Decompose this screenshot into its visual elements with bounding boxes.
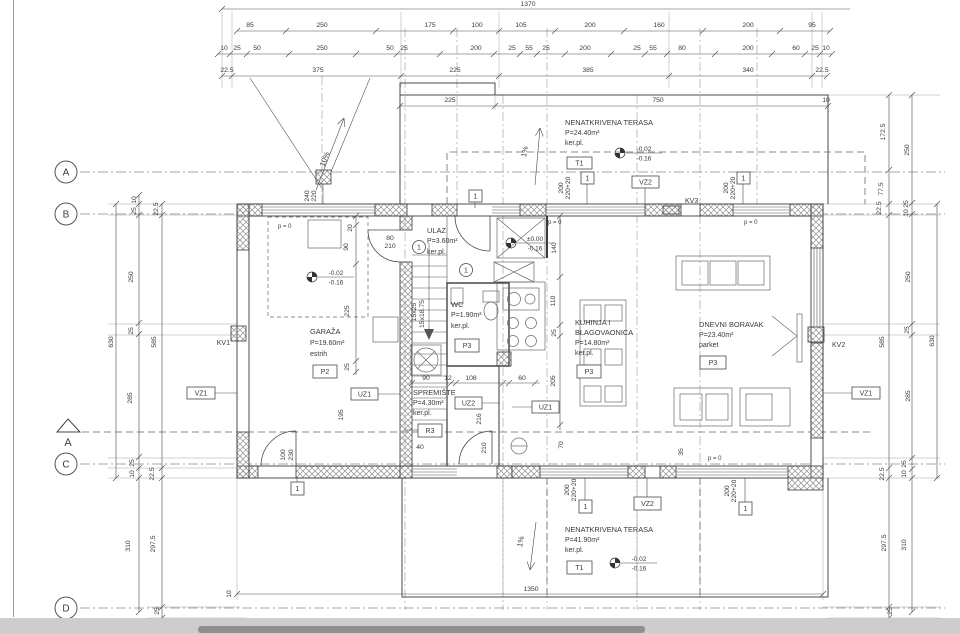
label: 340 [742, 67, 754, 74]
tag-boxes: T1VZ2111P2P3R3P3P3UZ1UZ2UZ1VZ1VZ1VZ2T111… [187, 157, 880, 574]
label: 210 [481, 442, 488, 454]
svg-text:R3: R3 [426, 428, 435, 435]
svg-text:P3: P3 [709, 360, 718, 367]
label: 10 [901, 470, 908, 478]
svg-text:-0.16: -0.16 [637, 156, 652, 163]
label: 140 [551, 242, 558, 254]
label: 85 [246, 22, 254, 29]
label: 25 [400, 45, 408, 52]
label: 250 [905, 271, 912, 283]
label: 375 [312, 67, 324, 74]
label: P=14.80m² [575, 340, 610, 347]
label: 55 [525, 45, 533, 52]
label: KUHINJA I [575, 318, 610, 327]
label: ker.pl. [565, 547, 584, 554]
svg-text:A: A [63, 168, 70, 179]
svg-text:C: C [62, 460, 69, 471]
label: P=19.60m² [310, 340, 345, 347]
flue [497, 352, 511, 366]
label: 285 [905, 390, 912, 402]
level-marker: -0.02-0.16 [615, 146, 662, 163]
label: 108 [465, 375, 477, 382]
label: 70 [558, 441, 565, 449]
label: 585 [879, 336, 886, 348]
dimension-chain [397, 103, 831, 109]
label: ker.pl. [451, 323, 470, 330]
label: estrih [310, 351, 327, 358]
label: 250 [316, 22, 328, 29]
label: 10 [226, 590, 233, 598]
label: ULAZ [427, 226, 446, 235]
label: 25 [887, 607, 894, 615]
tag-box-vz1: VZ1 [823, 387, 880, 399]
svg-text:A: A [64, 437, 72, 449]
label: 90 [422, 375, 430, 382]
svg-text:1: 1 [464, 268, 468, 275]
label: 310 [125, 540, 132, 552]
kv2-marker [808, 327, 824, 342]
label: 25 [904, 326, 911, 334]
svg-text:1: 1 [742, 176, 746, 183]
circled-tag: 1 [460, 264, 473, 277]
floor-plan-drawing: 1370852501751001052001602009510255025050… [0, 0, 960, 633]
dimension-chain [219, 73, 830, 79]
label: 15x25 [411, 303, 418, 322]
label: 220+20 [730, 176, 737, 199]
label: 230 [288, 449, 295, 461]
grid-bubbles: ABCDA [55, 161, 80, 619]
label: P=23.40m² [699, 332, 734, 339]
label: 25 [344, 363, 351, 371]
label: KV2 [832, 342, 845, 349]
label: ker.pl. [575, 350, 594, 357]
tag-box-t1: T1 [567, 561, 592, 574]
label: 77.5 [878, 182, 885, 195]
dimension-chain [353, 213, 359, 375]
label: 10 [220, 45, 228, 52]
svg-text:1: 1 [586, 176, 590, 183]
boiler [511, 438, 527, 454]
sink [525, 294, 535, 304]
stove-burner [526, 318, 537, 329]
label: 585 [151, 336, 158, 348]
label: 55 [649, 45, 657, 52]
slope-arrow: 1% [519, 128, 543, 185]
tag-box-1: 1 [581, 172, 594, 204]
svg-text:UZ2: UZ2 [462, 401, 475, 408]
tag-box-vz2: VZ2 [634, 478, 661, 510]
label: 220+20 [731, 479, 738, 502]
svg-text:1: 1 [417, 245, 421, 252]
label: 195 [338, 409, 345, 421]
svg-text:D: D [62, 604, 69, 615]
washing-machine [411, 345, 441, 375]
label: 297.5 [881, 534, 888, 551]
kv3-marker [663, 206, 679, 214]
label: 10 [822, 45, 830, 52]
label: 200 [723, 182, 730, 194]
label: 50 [253, 45, 261, 52]
label: 200 [724, 485, 731, 497]
label: 60 [792, 45, 800, 52]
label: 10 [129, 470, 136, 478]
label: P=1.90m² [451, 312, 482, 319]
label: p = 0 [744, 220, 758, 226]
label: NENATKRIVENA TERASA [565, 118, 653, 127]
label: KV3 [685, 198, 698, 205]
label: 630 [929, 335, 936, 347]
label: 25 [903, 200, 910, 208]
label: 200 [579, 45, 591, 52]
label: 22.5 [220, 67, 233, 74]
label: 385 [582, 67, 594, 74]
svg-text:B: B [63, 210, 70, 221]
svg-text:UZ1: UZ1 [539, 405, 552, 412]
tag-box-1: 1 [739, 478, 752, 515]
label: 225 [344, 305, 351, 317]
tag-box-p3: P3 [577, 365, 601, 378]
label: 20 [347, 224, 354, 232]
section-marker: A [57, 419, 80, 449]
tag-box-uz1: UZ1 [351, 388, 400, 400]
label: 12 [444, 375, 452, 382]
label: 25 [542, 45, 550, 52]
svg-text:1%: 1% [515, 535, 526, 548]
svg-text:1: 1 [474, 194, 478, 201]
tag-box-p3: P3 [700, 356, 726, 369]
label: 200 [470, 45, 482, 52]
label: WC [451, 300, 464, 309]
label: 110 [550, 295, 557, 306]
svg-text:-0.16: -0.16 [528, 246, 543, 253]
garage-partition [400, 262, 412, 466]
label: 200 [558, 182, 565, 194]
svg-text:T1: T1 [575, 161, 583, 168]
tag-box-1: 1 [737, 172, 750, 204]
label: 220+20 [565, 176, 572, 199]
label: 220 [311, 190, 318, 202]
wardrobe [494, 262, 534, 282]
slope-arrow: 1% [515, 522, 536, 570]
label: 50 [386, 45, 394, 52]
grid-bubble-b: B [55, 203, 77, 225]
ramp-edge-left [250, 78, 323, 190]
label: p = 0 [548, 220, 562, 226]
svg-text:-0.02: -0.02 [632, 556, 647, 563]
label: 200 [564, 484, 571, 496]
label: 22.5 [876, 201, 883, 214]
label: ker.pl. [427, 249, 446, 256]
label: 100 [471, 22, 483, 29]
svg-text:P3: P3 [463, 343, 472, 350]
label: ker.pl. [565, 140, 584, 147]
svg-text:VZ1: VZ1 [860, 391, 873, 398]
svg-text:T1: T1 [575, 565, 583, 572]
label: 25 [128, 327, 135, 335]
garage-cabinet [308, 220, 341, 248]
label: 22.5 [815, 67, 828, 74]
tag-box-vz2: VZ2 [632, 176, 659, 204]
label: 60 [518, 375, 526, 382]
label: NENATKRIVENA TERASA [565, 525, 653, 534]
label: 80 [386, 235, 394, 242]
label: KV1 [217, 340, 230, 347]
dimension-chain [136, 192, 142, 615]
label: p = 0 [278, 224, 292, 230]
label: 25 [154, 607, 161, 615]
entrance-door [455, 216, 490, 251]
label: 310 [901, 539, 908, 551]
label: 35 [678, 448, 685, 456]
grid-bubble-c: C [55, 453, 77, 475]
stair-arrow [424, 329, 434, 340]
svg-text:-0.16: -0.16 [329, 280, 344, 287]
svg-text:VZ2: VZ2 [639, 180, 652, 187]
label: 22.5 [153, 202, 160, 215]
svg-text:UZ1: UZ1 [358, 392, 371, 399]
label: 25 [633, 45, 641, 52]
label: 25 [811, 45, 819, 52]
label: 1370 [520, 1, 535, 8]
scrollbar-thumb[interactable] [198, 626, 645, 633]
tag-box-p2: P2 [313, 365, 337, 378]
stove-burner [526, 336, 537, 347]
svg-text:VZ1: VZ1 [195, 391, 208, 398]
tag-box-vz1: VZ1 [187, 387, 237, 399]
understair-closet [373, 317, 398, 342]
dimension-chain [159, 201, 165, 621]
label: 205 [550, 375, 557, 387]
label: parket [699, 342, 719, 349]
label: 80 [678, 45, 686, 52]
garage-partition [400, 216, 412, 230]
label: 105 [515, 22, 527, 29]
label: 10 [903, 209, 910, 217]
label: 285 [127, 392, 134, 404]
label: 22.5 [149, 467, 156, 480]
label: 200 [584, 22, 596, 29]
svg-text:P3: P3 [585, 369, 594, 376]
sofa-set [674, 256, 790, 426]
label: 25 [233, 45, 241, 52]
label: 172.5 [880, 123, 887, 140]
label: 220+20 [571, 478, 578, 501]
tag-box-uz2: UZ2 [455, 397, 500, 409]
label: 10 [131, 196, 138, 204]
label: p = 0 [708, 456, 722, 462]
svg-text:1: 1 [744, 506, 748, 513]
label: P=24.40m² [565, 130, 600, 137]
label: 15x18.75 [419, 300, 426, 328]
label: 160 [653, 22, 665, 29]
grid-bubble-a: A [55, 161, 77, 183]
level-marker: -0.02-0.16 [307, 270, 354, 287]
ramp-edge-right [331, 78, 370, 172]
dimension-chain [909, 92, 915, 615]
label: 22.5 [879, 467, 886, 480]
bottom-terrace-outline [402, 478, 828, 597]
svg-text:10%: 10% [318, 150, 332, 168]
svg-text:-0.02: -0.02 [329, 270, 344, 277]
tag-box-uz1: UZ1 [512, 401, 559, 413]
toilet [484, 302, 498, 320]
label: 100 [280, 449, 287, 461]
label: 250 [128, 271, 135, 283]
label: 216 [476, 413, 483, 425]
label: 10 [822, 97, 830, 104]
label: 1350 [523, 586, 538, 593]
label: P=3.60m² [427, 238, 458, 245]
label: 250 [904, 144, 911, 156]
ramp-drain [316, 170, 331, 184]
label: 297.5 [150, 535, 157, 552]
svg-text:1: 1 [584, 504, 588, 511]
label: 175 [424, 22, 436, 29]
kv1-marker [231, 326, 246, 341]
svg-text:1: 1 [296, 486, 300, 493]
tag-box-t1: T1 [567, 157, 592, 169]
label: SPREMIŠTE [413, 388, 456, 397]
label: 200 [742, 22, 754, 29]
label: 630 [108, 336, 115, 348]
label: 25 [551, 329, 558, 337]
label: 25 [131, 207, 138, 215]
label: DNEVNI BORAVAK [699, 320, 764, 329]
label: P=4.30m² [413, 400, 444, 407]
label: 750 [652, 97, 664, 104]
label: 95 [808, 22, 816, 29]
label: 40 [416, 444, 424, 451]
label: 200 [742, 45, 754, 52]
label: 90 [343, 243, 350, 251]
label: ker.pl. [413, 410, 432, 417]
tv [797, 314, 802, 362]
tv-view-chevron [772, 316, 797, 356]
svg-text:P2: P2 [321, 369, 330, 376]
circled-tag: 1 [413, 241, 426, 254]
label: 25 [508, 45, 516, 52]
label: 25 [129, 459, 136, 467]
svg-text:VZ2: VZ2 [641, 501, 654, 508]
planter-strip [400, 83, 495, 95]
label: 240 [304, 190, 311, 202]
label: 225 [449, 67, 461, 74]
label: P=41.90m² [565, 537, 600, 544]
svg-text:±0.00: ±0.00 [527, 236, 544, 243]
svg-text:1%: 1% [519, 145, 530, 158]
svg-text:-0.02: -0.02 [637, 146, 652, 153]
floor-plan-canvas: 1370852501751001052001602009510255025050… [0, 0, 960, 633]
label: 210 [384, 243, 396, 250]
tag-box-p3: P3 [455, 339, 479, 352]
svg-text:-0.16: -0.16 [632, 566, 647, 573]
label: 250 [316, 45, 328, 52]
tag-box-1: 1 [291, 478, 304, 495]
label: 25 [901, 460, 908, 468]
label: BLAGOVAONICA [575, 328, 633, 337]
top-terrace-outline [400, 95, 828, 204]
label: 225 [444, 97, 456, 104]
grid-bubble-d: D [55, 597, 77, 619]
tag-box-1: 1 [579, 478, 592, 513]
level-marker: -0.02-0.16 [610, 556, 657, 573]
label: GARAŽA [310, 327, 340, 336]
